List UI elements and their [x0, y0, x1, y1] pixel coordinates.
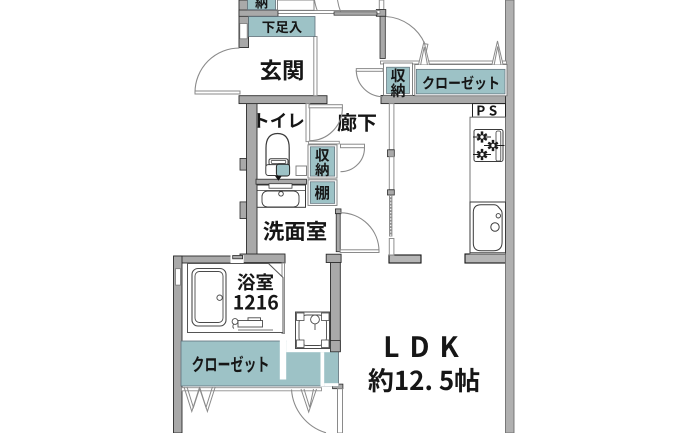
svg-text:約12. 5帖: 約12. 5帖 [368, 361, 480, 398]
svg-text:玄関: 玄関 [259, 53, 304, 85]
svg-text:クローゼット: クローゼット [192, 351, 270, 377]
svg-text:PS: PS [476, 99, 500, 119]
svg-text:廊下: 廊下 [337, 107, 377, 136]
svg-text:下足入: 下足入 [262, 16, 303, 36]
svg-text:1216: 1216 [233, 287, 279, 316]
svg-text:トイレ: トイレ [252, 108, 305, 133]
svg-text:納: 納 [390, 80, 405, 101]
svg-text:LDK: LDK [383, 326, 468, 366]
svg-text:納: 納 [315, 159, 330, 180]
svg-text:洗面室: 洗面室 [263, 215, 328, 246]
svg-text:棚: 棚 [315, 181, 331, 203]
svg-text:クローゼット: クローゼット [422, 72, 500, 93]
svg-text:納: 納 [255, 0, 268, 12]
